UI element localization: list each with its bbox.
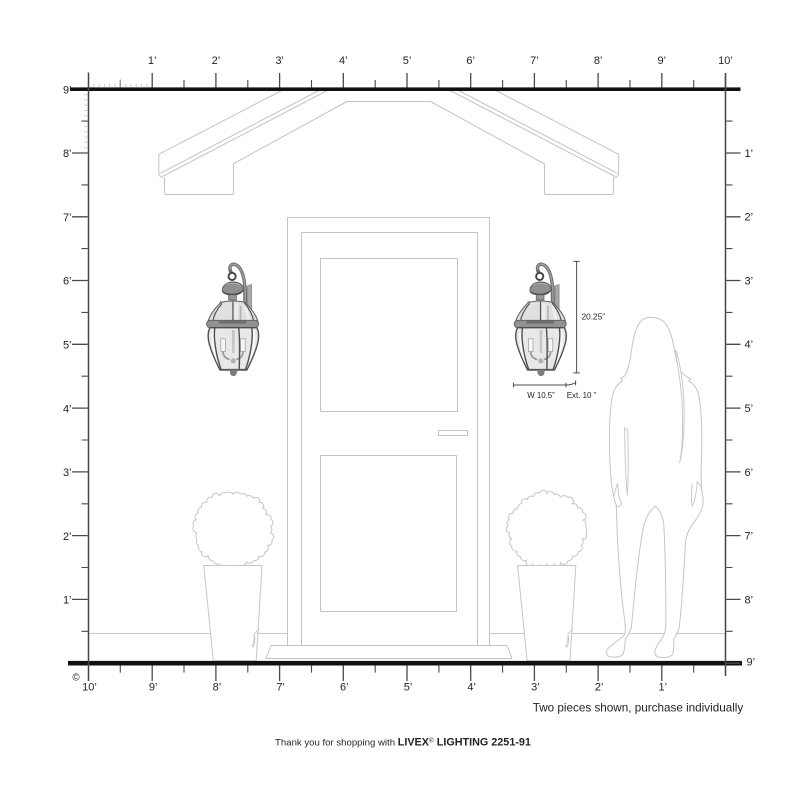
svg-text:9’: 9’ bbox=[747, 657, 756, 669]
svg-text:6’: 6’ bbox=[63, 276, 72, 288]
svg-text:2’: 2’ bbox=[212, 55, 221, 67]
svg-text:8’: 8’ bbox=[213, 681, 222, 693]
svg-text:2’: 2’ bbox=[63, 531, 72, 543]
svg-text:2’: 2’ bbox=[595, 681, 604, 693]
svg-text:3’: 3’ bbox=[275, 55, 284, 67]
svg-text:2’: 2’ bbox=[745, 212, 754, 224]
svg-text:Ext. 10 ”: Ext. 10 ” bbox=[567, 391, 597, 400]
svg-text:9’: 9’ bbox=[658, 55, 667, 67]
svg-text:9’: 9’ bbox=[63, 84, 72, 96]
svg-text:7’: 7’ bbox=[63, 212, 72, 224]
svg-text:3’: 3’ bbox=[531, 681, 540, 693]
svg-text:3’: 3’ bbox=[745, 275, 754, 287]
svg-text:7’: 7’ bbox=[276, 681, 285, 693]
svg-text:5’: 5’ bbox=[403, 55, 412, 67]
svg-text:4’: 4’ bbox=[467, 681, 476, 693]
svg-text:7’: 7’ bbox=[530, 55, 539, 67]
svg-text:5’: 5’ bbox=[404, 681, 413, 693]
svg-text:9’: 9’ bbox=[149, 681, 158, 693]
svg-text:1’: 1’ bbox=[745, 148, 754, 160]
svg-text:8’: 8’ bbox=[745, 594, 754, 606]
svg-text:1’: 1’ bbox=[148, 55, 157, 67]
svg-text:6’: 6’ bbox=[745, 467, 754, 479]
svg-text:10’: 10’ bbox=[82, 681, 97, 693]
svg-text:6’: 6’ bbox=[340, 681, 349, 693]
svg-text:8’: 8’ bbox=[594, 55, 603, 67]
svg-text:1’: 1’ bbox=[63, 595, 72, 607]
svg-text:20.25”: 20.25” bbox=[582, 312, 606, 322]
svg-text:4’: 4’ bbox=[339, 55, 348, 67]
svg-text:4’: 4’ bbox=[63, 403, 72, 415]
svg-text:5’: 5’ bbox=[745, 403, 754, 415]
svg-text:5’: 5’ bbox=[63, 340, 72, 352]
svg-text:1’: 1’ bbox=[659, 681, 668, 693]
svg-text:7’: 7’ bbox=[745, 531, 754, 543]
svg-text:©: © bbox=[72, 673, 80, 684]
svg-text:W 10.5”: W 10.5” bbox=[527, 391, 555, 400]
svg-text:4’: 4’ bbox=[745, 339, 754, 351]
svg-text:8’: 8’ bbox=[63, 148, 72, 160]
svg-text:Thank you for shopping with LI: Thank you for shopping with LIVEX® LIGHT… bbox=[275, 736, 531, 748]
svg-text:10’: 10’ bbox=[718, 55, 733, 67]
svg-text:6’: 6’ bbox=[466, 55, 475, 67]
svg-text:Two pieces shown, purchase ind: Two pieces shown, purchase individually bbox=[533, 702, 744, 715]
svg-text:3’: 3’ bbox=[63, 467, 72, 479]
